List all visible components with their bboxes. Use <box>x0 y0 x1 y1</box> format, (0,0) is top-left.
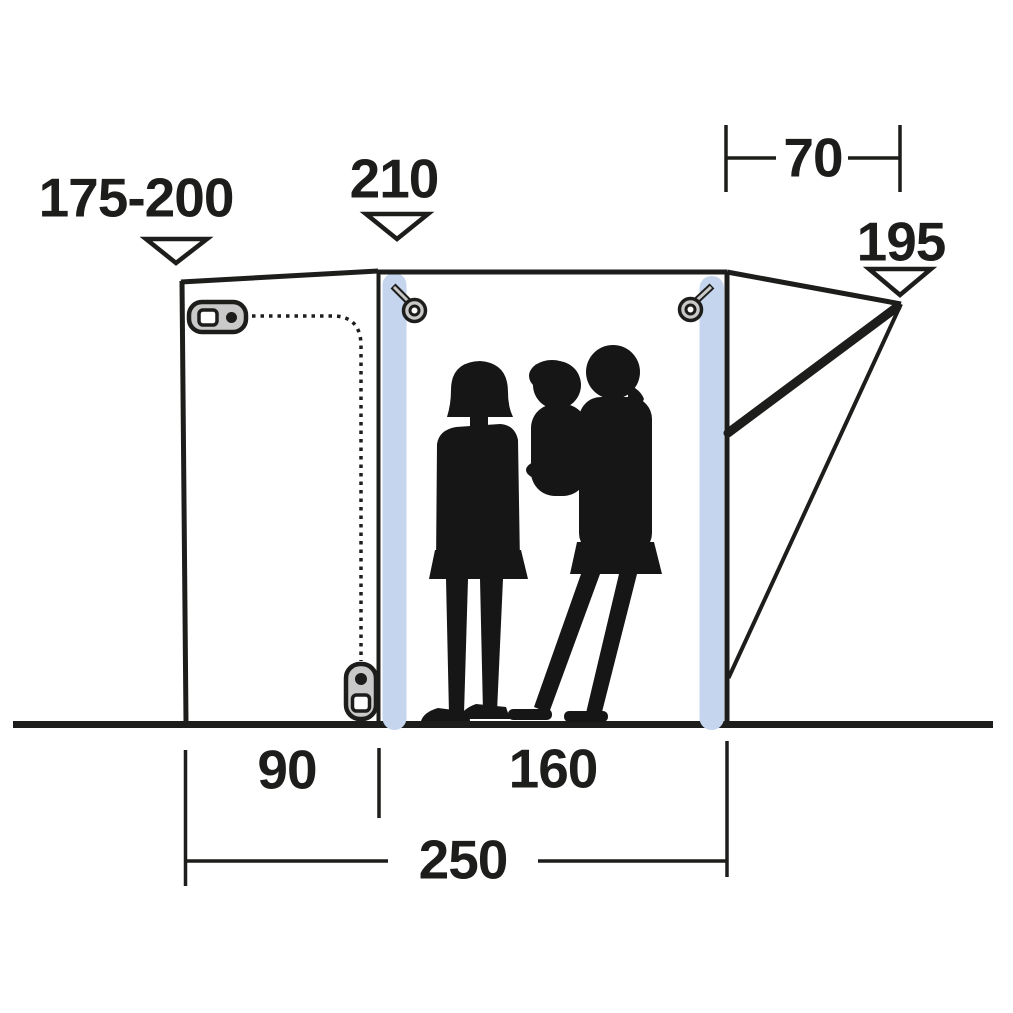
zipper-path-dotted-line <box>252 316 361 661</box>
dimension-label-front-section-width: 90 <box>257 743 316 798</box>
left-wall-line <box>182 281 186 722</box>
dimension-label-attachment-height: 175-200 <box>39 171 234 226</box>
awning-dimension-diagram: 175-200 210 70 195 90 160 250 <box>0 0 1013 1013</box>
air-pole-rear <box>700 276 725 730</box>
adult-with-child-silhouette <box>508 345 662 722</box>
rear-panel-edge-line <box>729 304 902 678</box>
arrow-down-icon-175-200 <box>146 239 207 263</box>
dimension-label-peak-height: 210 <box>350 152 439 207</box>
arrow-down-icon-195 <box>869 269 931 295</box>
zipper-pull-icon <box>346 664 376 719</box>
woman-silhouette <box>421 361 528 721</box>
dimension-label-rear-edge-height: 195 <box>857 215 946 270</box>
family-silhouette <box>421 345 662 722</box>
tent-outline <box>181 271 901 722</box>
dimension-label-total-width: 250 <box>419 833 508 888</box>
dimension-arrows <box>146 214 931 295</box>
air-pole-front <box>383 273 407 730</box>
dimension-label-tunnel-depth: 70 <box>783 131 842 186</box>
arrow-down-icon-210 <box>366 214 428 239</box>
toggle-clip-icon <box>189 302 246 332</box>
dimension-label-main-section-width: 160 <box>509 742 598 797</box>
roof-left-line <box>181 271 378 282</box>
